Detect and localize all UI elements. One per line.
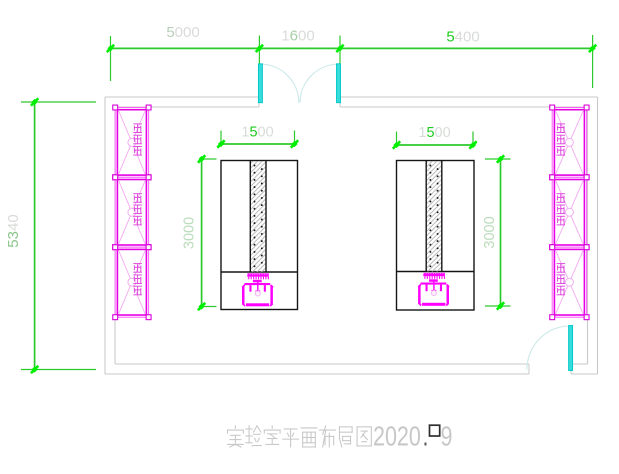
svg-text:3000: 3000 <box>182 217 198 249</box>
svg-text:2020: 2020 <box>373 422 421 452</box>
svg-text:3000: 3000 <box>482 216 498 248</box>
svg-text:9: 9 <box>441 422 453 452</box>
svg-text:1500: 1500 <box>241 125 273 141</box>
svg-text:1500: 1500 <box>418 125 450 141</box>
svg-text:5400: 5400 <box>446 29 479 46</box>
svg-text:5000: 5000 <box>166 24 199 41</box>
svg-text:.: . <box>423 422 429 452</box>
svg-text:1600: 1600 <box>281 28 314 45</box>
svg-text:5340: 5340 <box>5 214 22 247</box>
